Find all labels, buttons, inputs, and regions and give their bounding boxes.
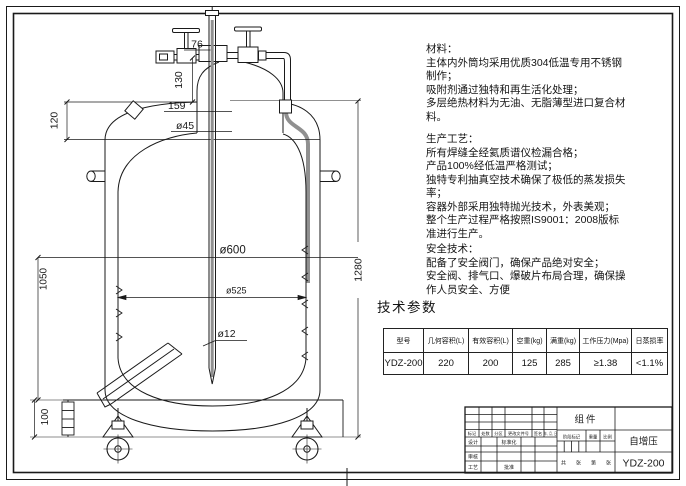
- process-line: 独特专利抽真空技术确保了极低的蒸发损失: [426, 174, 678, 188]
- caster-right: [292, 408, 322, 464]
- dim-130: 130: [173, 71, 185, 89]
- tb-rev-count: 处数: [481, 430, 490, 437]
- tb-sheet-zhang1: 张: [576, 460, 581, 467]
- tb-stage-weight: 重量: [589, 433, 598, 440]
- tb-rev-zone: 分区: [494, 430, 502, 437]
- col-working-pressure: 工作压力(Mpa): [580, 329, 632, 353]
- dim-45: ø45: [176, 120, 194, 132]
- process-line: 容器外部采用独特抛光技术，外表美观；: [426, 201, 678, 215]
- dim-120: 120: [49, 112, 61, 130]
- left-valve-handle: [173, 29, 200, 33]
- val-full-weight: 285: [547, 353, 580, 375]
- process-line: 整个生产过程严格按照IS9001：2008版标: [426, 214, 678, 228]
- tb-component: 组件: [574, 414, 597, 426]
- val-evaporation-rate: <1.1%: [632, 353, 668, 375]
- col-geometric-volume: 几何容积(L): [424, 329, 469, 353]
- materials-line: 多层绝热材料为无油、无脂薄型进口复合材: [426, 97, 678, 111]
- safety-line: 作人员安全、方便: [426, 284, 678, 298]
- left-valve-body: [177, 49, 196, 64]
- process-line: 准进行生产。: [426, 228, 678, 242]
- safety-note: 安全技术： 配备了安全阀门，确保产品绝对安全； 安全阀、排气口、爆破片布局合理，…: [426, 243, 678, 297]
- caster-left: [103, 408, 133, 464]
- tb-rev-sign: 签名: [534, 430, 542, 437]
- params-data-row: YDZ-200 220 200 125 285 ≥1.38 <1.1%: [384, 353, 668, 375]
- pipe-union: [259, 51, 267, 60]
- col-empty-weight: 空重(kg): [513, 329, 547, 353]
- dim-159: 159: [168, 100, 186, 112]
- process-line: 产品100%经低温严格测试；: [426, 160, 678, 174]
- drawing-sheet: 76 130 120 159 ø45 ø600 ø525 ø12 1050 10…: [0, 0, 686, 486]
- dome-gland: [280, 100, 292, 113]
- params-header-row: 型号 几何容积(L) 有效容积(L) 空重(kg) 满重(kg) 工作压力(Mp…: [384, 329, 668, 353]
- safety-title: 安全技术：: [426, 243, 678, 257]
- params-heading: 技术参数: [377, 296, 437, 316]
- tb-sheet-total: 共: [561, 460, 566, 467]
- materials-line: 吸附剂通过独特和再生活化处理；: [426, 84, 678, 98]
- tb-product: 自增压: [629, 436, 658, 448]
- right-valve-handle: [235, 27, 262, 31]
- safety-line: 配备了安全阀门，确保产品绝对安全；: [426, 257, 678, 271]
- tb-sheet-zhang2: 张: [606, 460, 611, 467]
- process-note: 生产工艺： 所有焊缝全经氦质谱仪检漏合格； 产品100%经低温严格测试； 独特专…: [426, 133, 678, 241]
- process-title: 生产工艺：: [426, 133, 678, 147]
- val-working-pressure: ≥1.38: [580, 353, 632, 375]
- tb-role-process: 工艺: [468, 465, 478, 471]
- dim-1050: 1050: [39, 267, 50, 290]
- dim-76: 76: [191, 39, 203, 51]
- dome-nameplate: [125, 101, 143, 119]
- dim-600: ø600: [220, 245, 246, 257]
- tb-sheet-no: 第: [591, 460, 596, 467]
- right-valve-body: [238, 47, 258, 63]
- tb-rev-date: 年、月、日: [544, 430, 557, 437]
- tb-rev-docno: 更改文件号: [508, 430, 529, 437]
- tb-model: YDZ-200: [622, 458, 664, 470]
- pressure-gauge: [156, 51, 174, 63]
- dim-525: ø525: [226, 286, 247, 296]
- materials-line: 制作；: [426, 70, 678, 84]
- neck-assembly: [197, 62, 283, 133]
- dimensions: [30, 50, 361, 440]
- col-model: 型号: [384, 329, 424, 353]
- tb-rev-mark: 标记: [468, 430, 477, 437]
- vessel-outer-shell: [64, 102, 320, 431]
- dim-12: ø12: [218, 328, 236, 340]
- val-model: YDZ-200: [384, 353, 424, 375]
- tb-stage-scale: 比例: [603, 433, 612, 440]
- params-table: 型号 几何容积(L) 有效容积(L) 空重(kg) 满重(kg) 工作压力(Mp…: [383, 328, 668, 375]
- tb-role-approve: 批准: [504, 464, 514, 471]
- val-effective-volume: 200: [469, 353, 513, 375]
- safety-line: 安全阀、排气口、爆破片布局合理，确保操: [426, 270, 678, 284]
- materials-line: 料。: [426, 111, 678, 125]
- col-full-weight: 满重(kg): [547, 329, 580, 353]
- val-empty-weight: 125: [513, 353, 547, 375]
- fill-chute: [97, 343, 182, 407]
- materials-note: 材料： 主体内外筒均采用优质304低温专用不锈钢 制作； 吸附剂通过独特和再生活…: [426, 43, 678, 124]
- materials-line: 主体内外筒均采用优质304低温专用不锈钢: [426, 57, 678, 71]
- dim-100: 100: [40, 408, 51, 425]
- process-line: 所有焊缝全经氦质谱仪检漏合格；: [426, 147, 678, 161]
- dimension-labels: 76 130 120 159 ø45 ø600 ø525 ø12 1050 10…: [39, 39, 365, 426]
- tb-role-standard: 标准化: [501, 439, 516, 446]
- process-line: 率；: [426, 187, 678, 201]
- tb-role-design: 设计: [468, 439, 478, 446]
- materials-title: 材料：: [426, 43, 678, 57]
- val-geometric-volume: 220: [424, 353, 469, 375]
- dim-1280: 1280: [353, 258, 365, 282]
- tb-stage-mark: 阶段标记: [563, 433, 581, 440]
- col-effective-volume: 有效容积(L): [469, 329, 513, 353]
- col-evaporation-rate: 日蒸损率: [632, 329, 668, 353]
- tb-role-check: 审核: [468, 453, 478, 460]
